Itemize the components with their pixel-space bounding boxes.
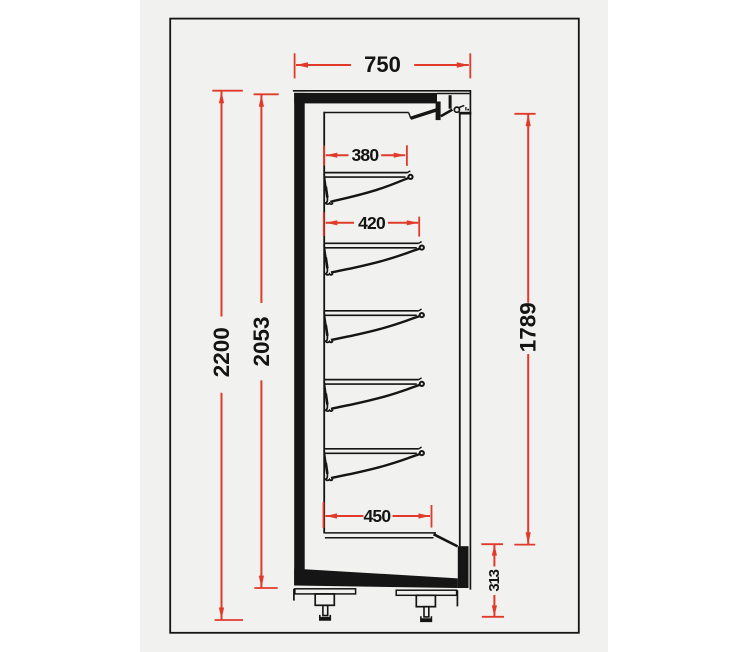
svg-text:420: 420 [358,213,386,233]
svg-text:750: 750 [364,52,401,77]
svg-text:450: 450 [363,506,391,526]
svg-text:1789: 1789 [516,302,541,352]
svg-text:313: 313 [486,569,503,591]
svg-text:2053: 2053 [249,316,274,366]
svg-text:380: 380 [351,145,379,165]
svg-text:2200: 2200 [209,327,234,377]
